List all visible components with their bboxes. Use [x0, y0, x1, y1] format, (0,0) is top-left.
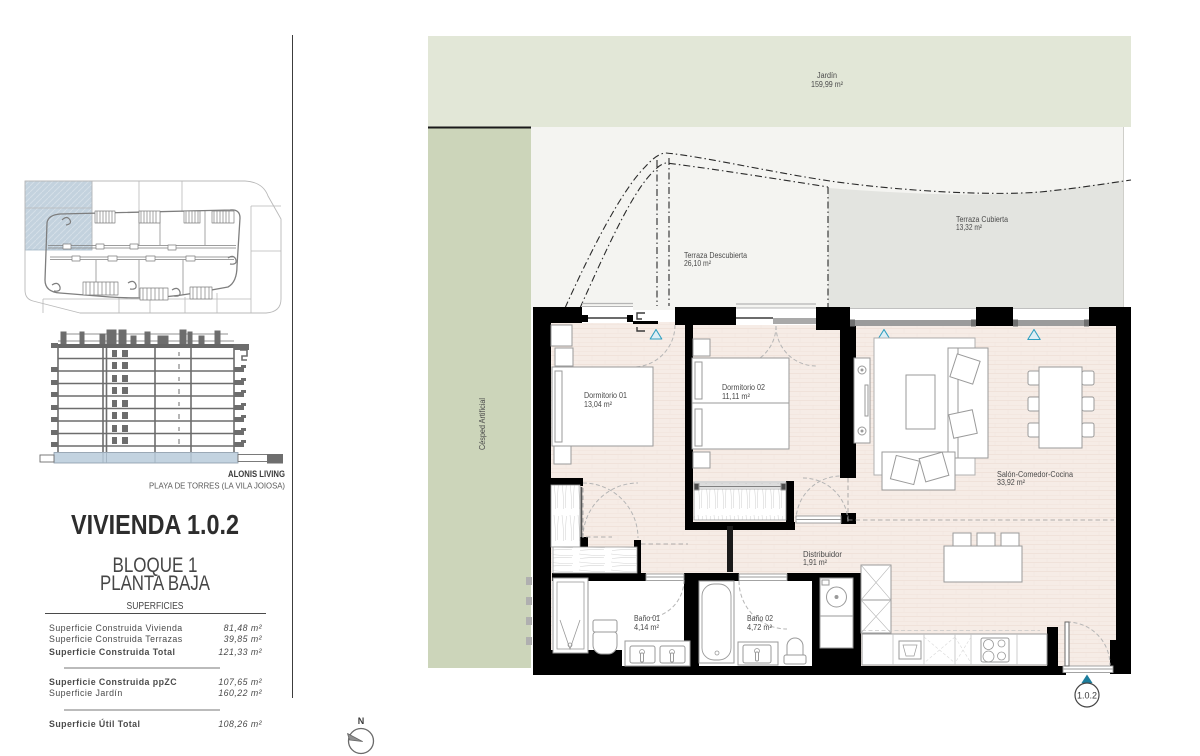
svg-text:13,32 m²: 13,32 m² [956, 223, 982, 232]
svg-text:1.0.2: 1.0.2 [1077, 691, 1097, 701]
svg-text:160,22 m²: 160,22 m² [218, 688, 262, 698]
svg-text:33,92 m²: 33,92 m² [997, 478, 1025, 487]
svg-text:Superficie Construida Terrazas: Superficie Construida Terrazas [49, 634, 183, 644]
svg-text:4,72 m²: 4,72 m² [747, 623, 772, 632]
svg-text:11,11 m²: 11,11 m² [722, 392, 750, 401]
svg-text:26,10 m²: 26,10 m² [684, 259, 711, 268]
svg-text:Baño 01: Baño 01 [634, 614, 660, 623]
svg-text:Dormitorio 02: Dormitorio 02 [722, 383, 765, 392]
svg-text:13,04 m²: 13,04 m² [584, 400, 612, 409]
svg-text:PLANTA BAJA: PLANTA BAJA [100, 572, 210, 595]
svg-text:Superficie Construida Total: Superficie Construida Total [49, 647, 175, 657]
svg-text:Superficie Jardín: Superficie Jardín [49, 688, 123, 698]
svg-text:1,91 m²: 1,91 m² [803, 558, 827, 567]
svg-text:Baño 02: Baño 02 [747, 614, 773, 623]
svg-text:Césped Artificial: Césped Artificial [478, 398, 487, 450]
svg-text:SUPERFICIES: SUPERFICIES [127, 601, 184, 612]
svg-text:Superficie Útil Total: Superficie Útil Total [49, 718, 140, 729]
svg-text:39,85 m²: 39,85 m² [224, 634, 263, 644]
svg-text:107,65 m²: 107,65 m² [218, 677, 262, 687]
svg-text:VIVIENDA 1.0.2: VIVIENDA 1.0.2 [71, 509, 239, 540]
svg-text:PLAYA DE TORRES (LA VILA JOIOS: PLAYA DE TORRES (LA VILA JOIOSA) [149, 482, 285, 491]
svg-text:Jardín: Jardín [817, 71, 837, 80]
svg-text:Superficie Construida Vivienda: Superficie Construida Vivienda [49, 623, 183, 633]
svg-text:ALONIS LIVING: ALONIS LIVING [228, 469, 285, 480]
svg-text:N: N [358, 716, 365, 726]
svg-text:81,48 m²: 81,48 m² [224, 623, 263, 633]
svg-text:4,14 m²: 4,14 m² [634, 623, 659, 632]
svg-text:108,26 m²: 108,26 m² [218, 719, 262, 729]
svg-text:159,99 m²: 159,99 m² [811, 80, 843, 89]
svg-text:121,33 m²: 121,33 m² [218, 647, 262, 657]
svg-text:Dormitorio 01: Dormitorio 01 [584, 391, 627, 400]
svg-text:Superficie Construida ppZC: Superficie Construida ppZC [49, 677, 177, 687]
